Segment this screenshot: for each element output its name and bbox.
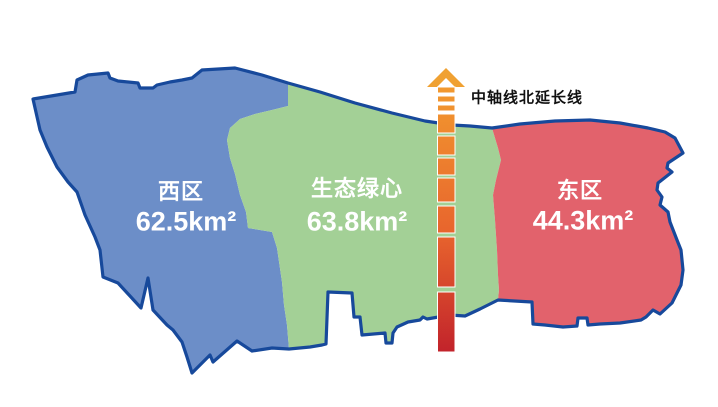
axis-dash-segment [438, 206, 456, 233]
axis-dash-segment [438, 96, 456, 102]
axis-dash-segment [438, 158, 456, 175]
east-district-area: 44.3km² [533, 208, 634, 235]
axis-dash-segment [438, 114, 456, 133]
west-district-name: 西区 [158, 181, 204, 203]
axis-dash-segment [438, 136, 456, 155]
green-heart-name: 生态绿心 [311, 178, 403, 200]
axis-dash-segment [438, 87, 456, 93]
west-district-area: 62.5km² [136, 209, 237, 236]
district-map-infographic: 西区 62.5km² 生态绿心 63.8km² 东区 44.3km² 中轴线北延… [0, 0, 718, 407]
axis-dash-segment [438, 292, 456, 352]
axis-dash-segment [438, 237, 456, 287]
east-district-name: 东区 [557, 180, 603, 202]
green-heart-area: 63.8km² [307, 209, 408, 236]
map-canvas [0, 0, 718, 407]
axis-label: 中轴线北延长线 [471, 87, 583, 108]
axis-dash-segment [438, 105, 456, 111]
axis-arrow-icon [427, 68, 465, 87]
axis-dash-segment [438, 178, 456, 202]
